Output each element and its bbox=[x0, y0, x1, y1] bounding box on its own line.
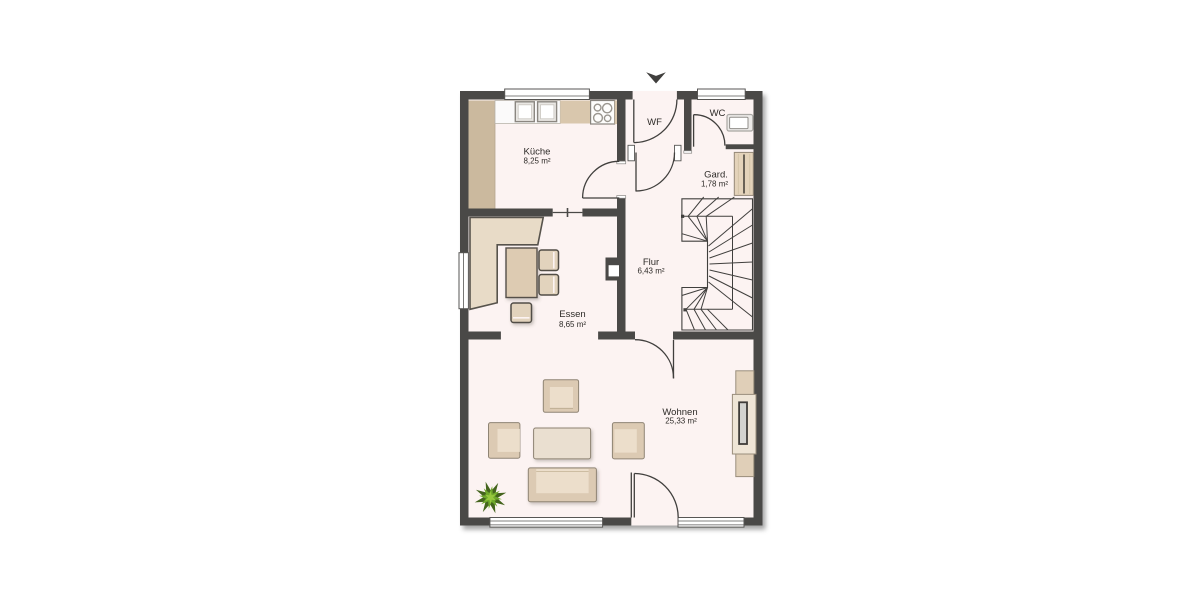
svg-text:WF: WF bbox=[647, 117, 662, 128]
svg-text:25,33 m²: 25,33 m² bbox=[665, 417, 697, 426]
svg-text:8,65 m²: 8,65 m² bbox=[559, 320, 586, 329]
svg-text:8,25 m²: 8,25 m² bbox=[523, 157, 550, 166]
svg-text:1,78 m²: 1,78 m² bbox=[701, 180, 728, 189]
svg-text:Essen: Essen bbox=[559, 309, 585, 320]
svg-text:6,43 m²: 6,43 m² bbox=[637, 267, 664, 276]
svg-text:WC: WC bbox=[710, 108, 726, 119]
